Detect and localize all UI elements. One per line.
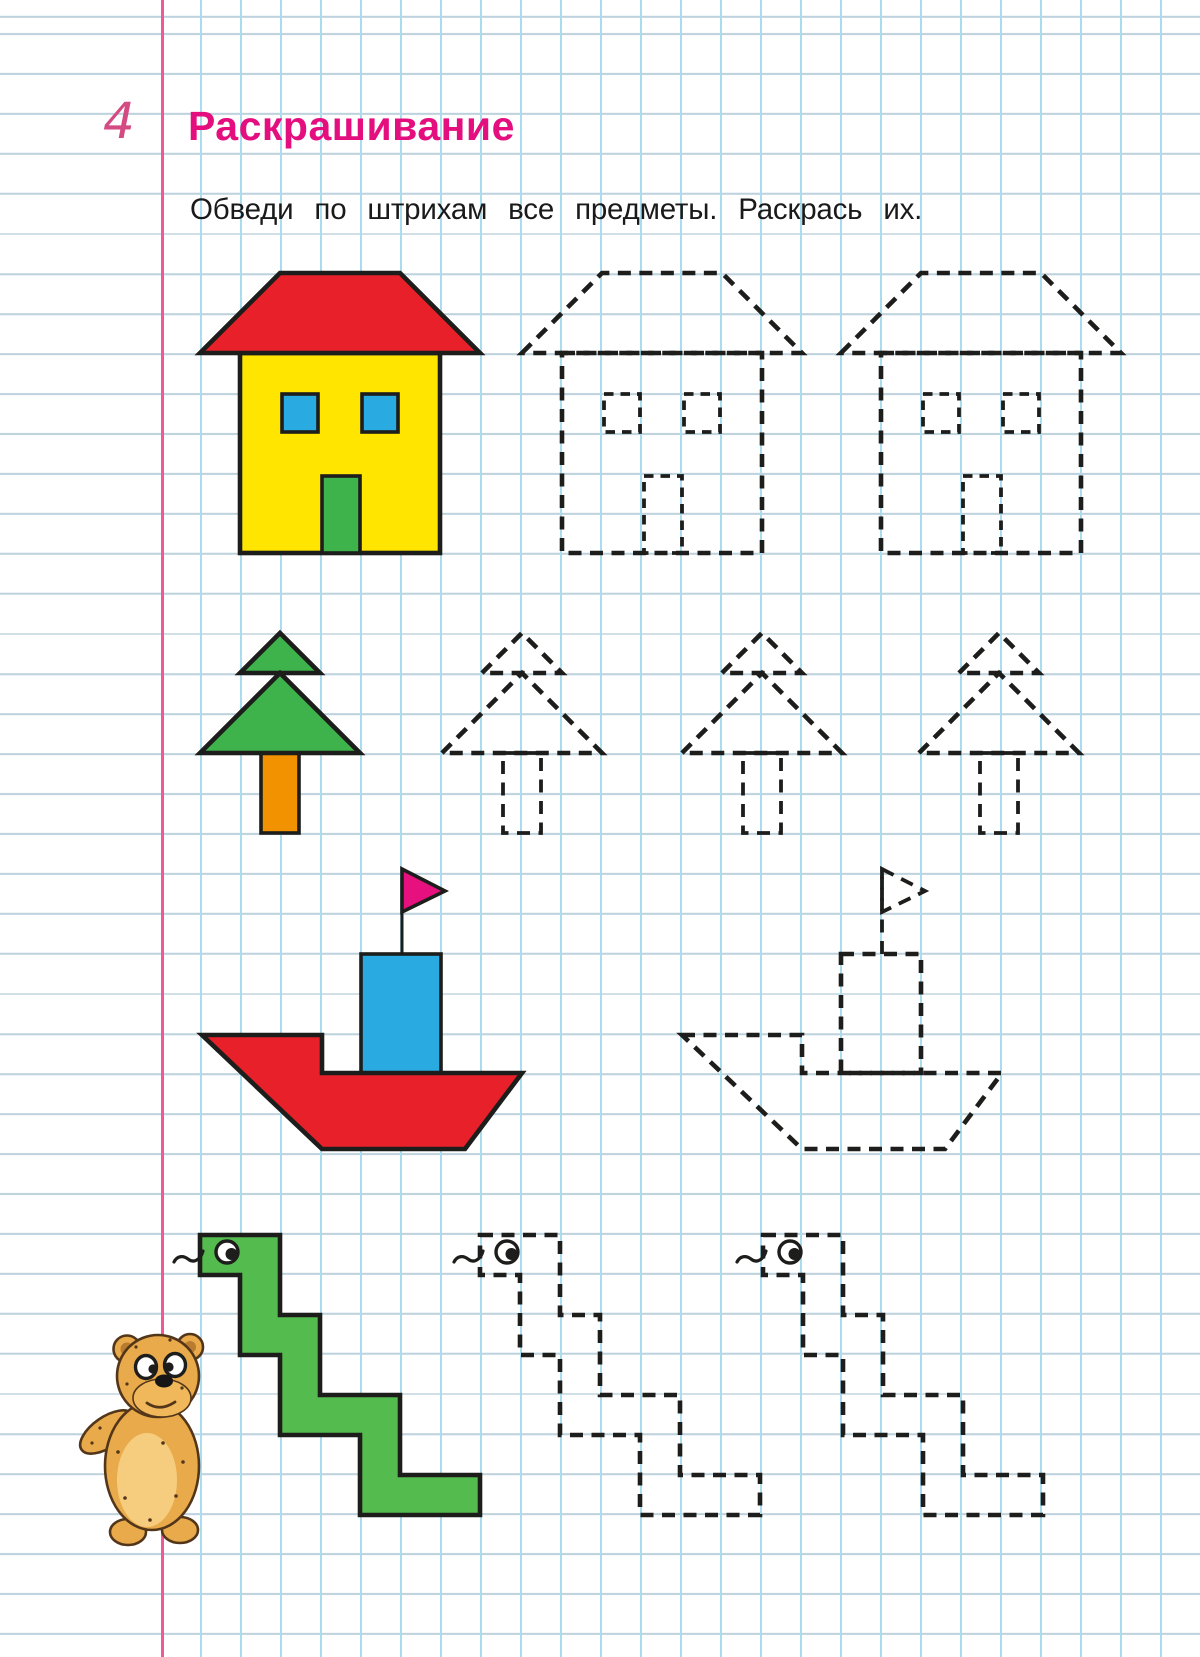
- house-door: [322, 476, 360, 553]
- boat-cabin: [361, 954, 441, 1073]
- bear-pupil-left: [148, 1364, 157, 1373]
- tree-outline-2: [682, 633, 842, 833]
- worksheet-artwork: [0, 0, 1200, 1657]
- tree-outline-3: [919, 633, 1079, 833]
- house-outline-2: [841, 273, 1121, 553]
- teddy-bear-illustration: [73, 1334, 203, 1545]
- snake-outline-1-face: [454, 1241, 518, 1263]
- house-window-left: [282, 394, 318, 432]
- boat-flag: [402, 869, 445, 912]
- house-outline-1: [522, 273, 802, 553]
- tree-bottom-triangle: [200, 673, 360, 753]
- snake-outline-2: [737, 1235, 1043, 1515]
- snake-outline-1: [454, 1235, 760, 1515]
- tree-colored: [200, 633, 360, 833]
- house-colored: [200, 273, 480, 553]
- tree-trunk: [261, 753, 299, 833]
- bear-pupil-right: [164, 1362, 173, 1371]
- boat-outline-1: [682, 869, 1002, 1149]
- bear-belly: [117, 1433, 177, 1527]
- tree-top-triangle: [240, 633, 320, 673]
- boat-colored: [202, 869, 522, 1149]
- workbook-page: 4 Раскрашивание Обведи по штрихам все пр…: [0, 0, 1200, 1657]
- snake-body: [200, 1235, 480, 1515]
- bear-nose: [155, 1375, 173, 1388]
- snake-outline-2-face: [737, 1241, 801, 1263]
- snake-colored: [174, 1235, 480, 1515]
- house-roof: [200, 273, 480, 353]
- tree-outline-1: [442, 633, 602, 833]
- house-window-right: [362, 394, 398, 432]
